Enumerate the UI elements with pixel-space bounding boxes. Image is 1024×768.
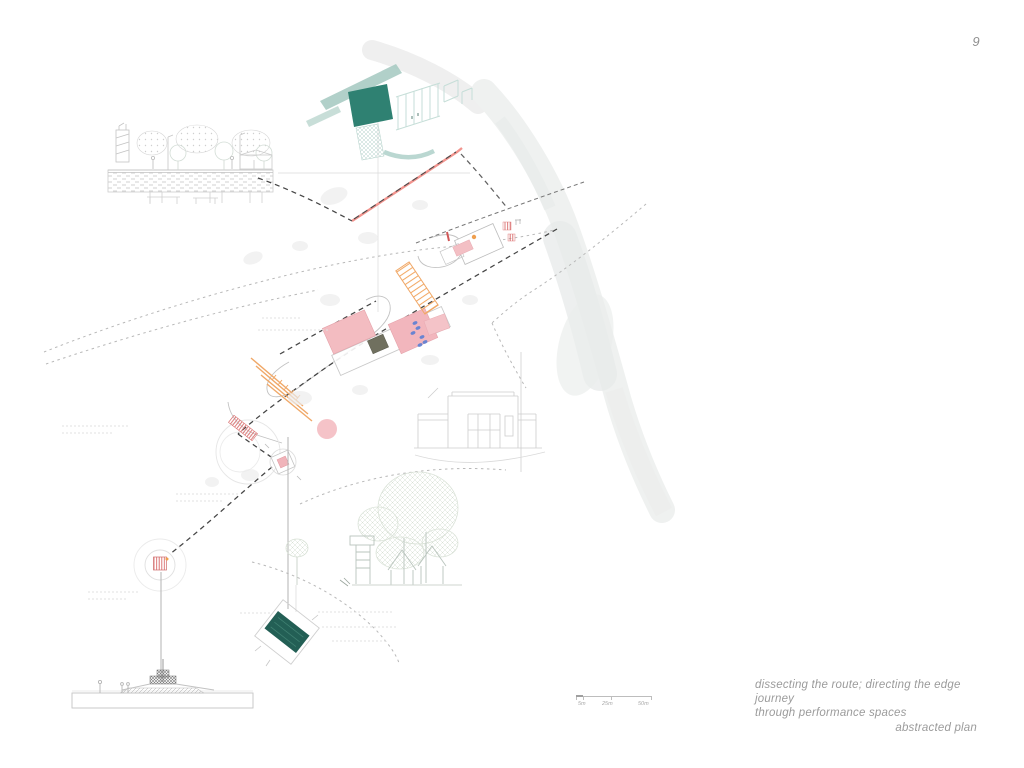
scale-bar-segment [576,695,583,697]
portfolio-sheet: 9 5m 25m 50m dissecting the route; direc… [0,0,1024,768]
teal-boat-structure [255,600,320,666]
trees-sketch [286,472,462,612]
page-number: 9 [966,34,986,49]
construction-lines [278,120,521,472]
waypoint-markers [154,419,338,682]
scale-tick [576,697,577,700]
scale-label-50m: 50m [638,701,649,707]
scale-tick [611,697,612,700]
promenade-elevation-sketch [108,123,273,204]
scale-label-5m: 5m [578,701,586,707]
pier-section-sketch [72,659,253,708]
caption-line-2: through performance spaces [755,706,977,720]
building-elevation-sketch [414,388,545,462]
scale-tick [583,697,584,700]
scale-label-25m: 25m [602,701,613,707]
performance-buildings-cluster [322,219,521,375]
annotation-scribbles [62,184,478,641]
abstracted-plan-drawing [0,0,1024,768]
drawing-title: abstracted plan [755,721,977,735]
scale-bar: 5m 25m 50m [576,696,654,710]
caption: dissecting the route; directing the edge… [755,678,977,735]
scale-tick [651,697,652,700]
scale-bar-labels: 5m 25m 50m [576,701,652,709]
caption-line-1: dissecting the route; directing the edge… [755,678,977,706]
